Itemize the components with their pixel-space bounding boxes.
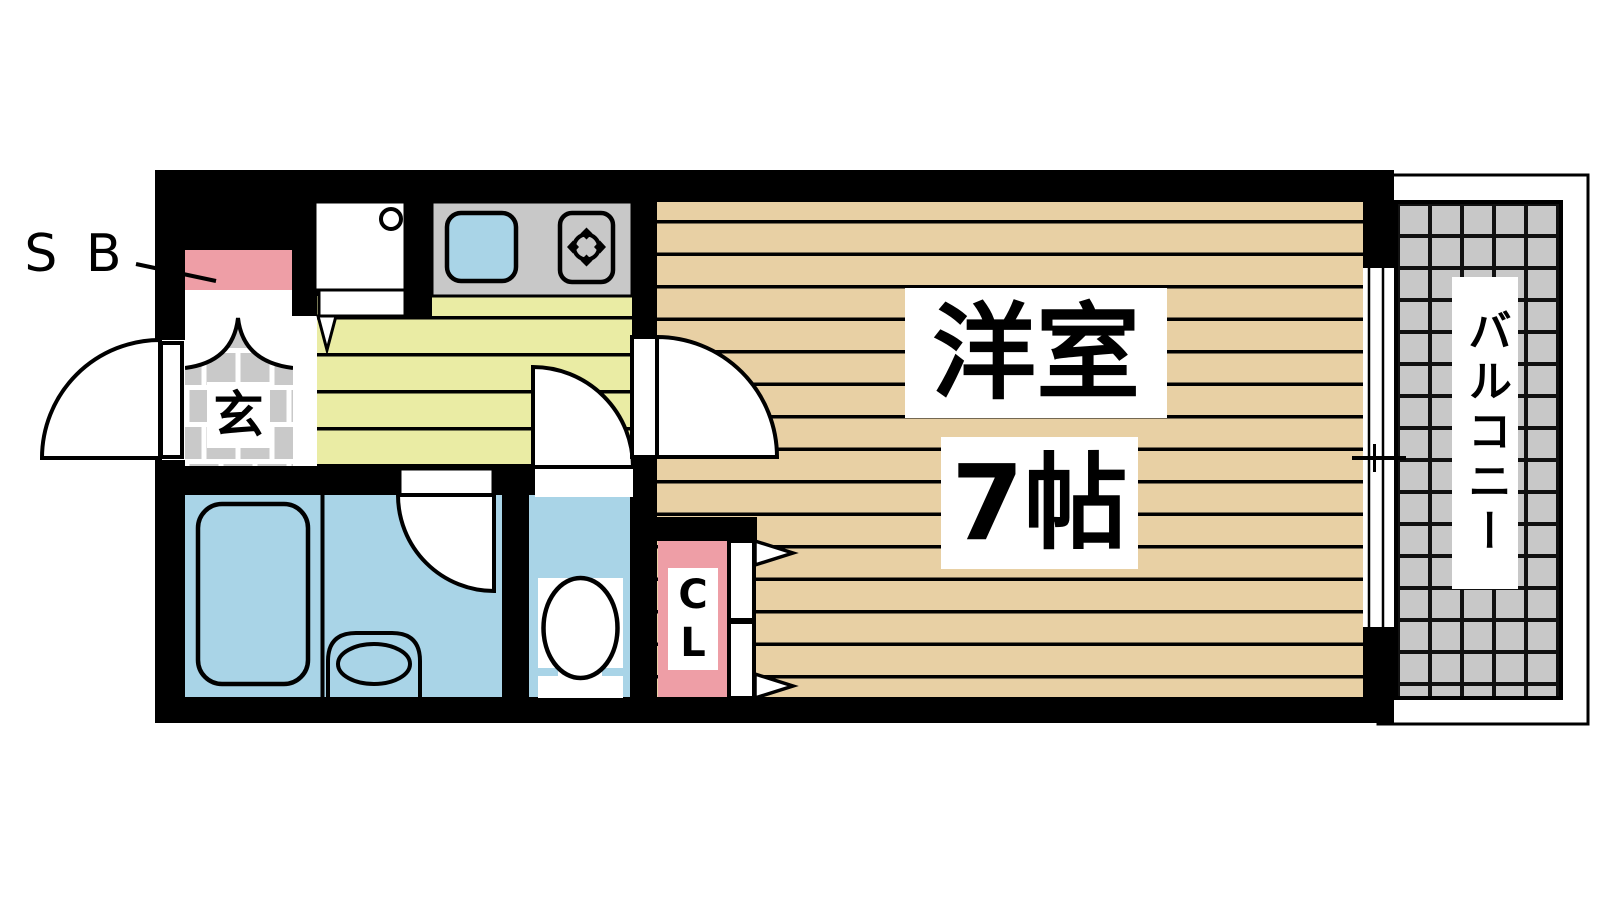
toilet-bowl — [544, 578, 618, 678]
entrance-step — [185, 290, 292, 316]
toilet-room — [529, 367, 633, 698]
closet-door-panel-top — [729, 541, 754, 620]
washer-drain-icon — [381, 209, 401, 229]
bathroom-door-opening — [400, 469, 493, 495]
balcony-label: バルコニー — [1452, 277, 1518, 589]
entrance-label: 玄 — [207, 382, 270, 448]
sliding-window — [1363, 268, 1394, 627]
closet-door-panel-bottom — [729, 622, 754, 698]
front-door-leaf — [161, 343, 182, 457]
wall-segment — [405, 202, 432, 316]
closet-label: C L — [668, 568, 718, 670]
main-room-door-leaf — [632, 337, 657, 457]
floor-plan-drawing — [0, 0, 1600, 900]
floor-plan: S B 玄 C L 洋室 7帖 バルコニー — [0, 0, 1600, 900]
front-door-arc — [42, 340, 160, 458]
closet-wall — [655, 517, 757, 541]
shoe-box — [185, 250, 292, 290]
closet-label-line1: C — [678, 571, 707, 619]
closet-label-line2: L — [680, 619, 706, 667]
kitchen-sink — [447, 213, 516, 281]
main-room-size-label: 7帖 — [941, 437, 1138, 569]
bathroom — [185, 469, 502, 697]
main-room-name-label: 洋室 — [905, 288, 1167, 418]
entrance-step-strip — [293, 316, 317, 466]
toilet-door-opening — [535, 467, 633, 497]
shoe-box-label: S B — [16, 226, 136, 282]
washing-pan-lip — [319, 290, 405, 316]
front-door — [42, 340, 185, 460]
